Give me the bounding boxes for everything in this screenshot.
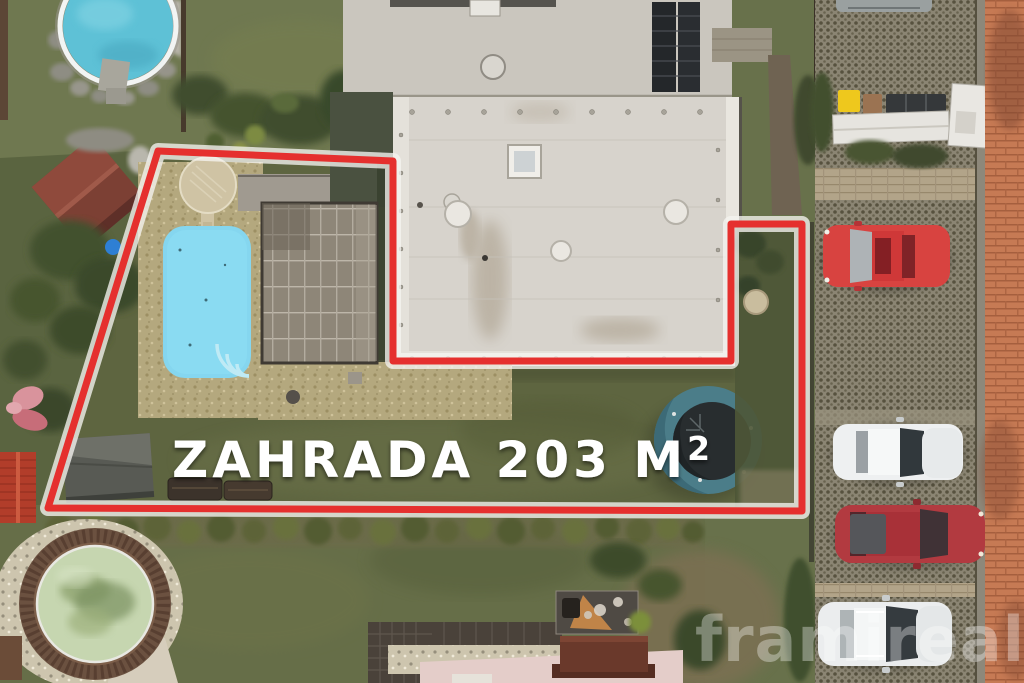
area-label: ZAHRADA 203 M2 <box>172 429 714 489</box>
red-tile-roof <box>0 452 36 523</box>
car-silver-partial <box>836 0 932 12</box>
garden-pool <box>163 226 251 378</box>
car-red-sedan <box>832 499 988 569</box>
wood-steps <box>0 636 22 680</box>
aerial-photo: ZAHRADA 203 M2 framireal <box>0 0 1024 683</box>
left-fence <box>0 0 8 120</box>
area-label-main: ZAHRADA 203 M <box>172 431 687 489</box>
mosaic-patch <box>556 591 638 634</box>
stall-divider-1 <box>815 168 978 200</box>
garden-fence <box>181 0 186 132</box>
roof-main <box>393 97 737 365</box>
brick-sidewalk <box>980 0 1024 683</box>
stone-well <box>744 290 768 314</box>
car-white-suv-upper <box>830 417 966 487</box>
aerial-scene: ZAHRADA 203 M2 framireal <box>0 0 1024 683</box>
roof-skylight-main <box>508 145 541 178</box>
utility-lid <box>348 372 362 384</box>
parking-area <box>809 0 998 683</box>
area-label-sup: 2 <box>687 429 714 468</box>
stall-divider-2 <box>815 410 978 425</box>
side-strip <box>734 226 801 510</box>
stone-step <box>106 88 126 104</box>
brown-bin <box>863 94 882 114</box>
roof-vent-upper <box>481 55 505 79</box>
drain <box>286 390 300 404</box>
roof-parapet-right <box>726 97 741 222</box>
skylight-upper <box>470 0 500 16</box>
stall-divider-3 <box>815 583 978 597</box>
green-ball-bush <box>629 611 651 633</box>
brown-planter <box>552 636 655 678</box>
solar-panels <box>652 2 700 92</box>
paved-path <box>712 28 772 62</box>
yellow-bin <box>838 90 860 112</box>
deck <box>262 203 377 363</box>
building <box>343 0 742 381</box>
car-red-hatchback <box>820 221 952 293</box>
watermark: framireal <box>695 603 1024 676</box>
